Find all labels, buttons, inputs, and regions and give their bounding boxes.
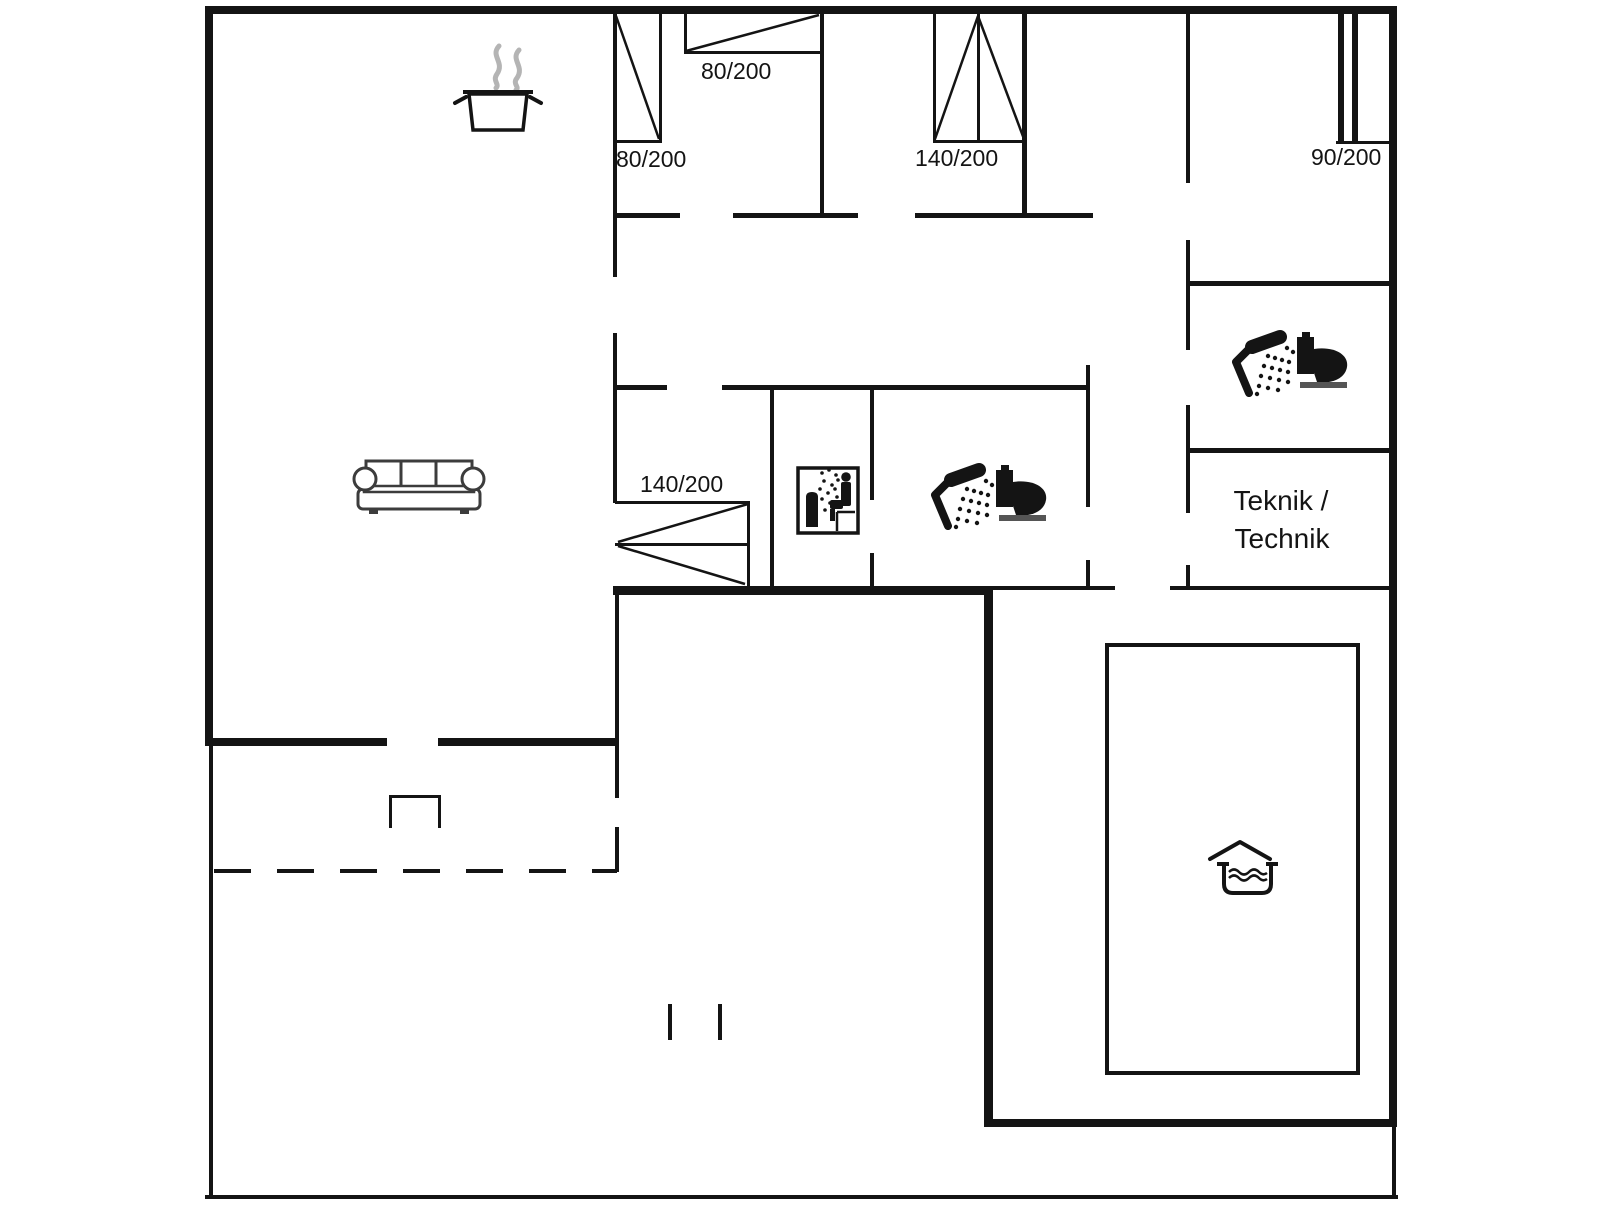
sauna-icon	[798, 468, 858, 533]
label-living-double-door: 140/200	[640, 471, 723, 497]
label-bedroom1-top-door: 80/200	[701, 58, 771, 84]
shower-icon	[935, 470, 994, 529]
dimension-labels: 80/200 80/200 140/200 90/200 140/200	[616, 58, 1381, 497]
double-swing-door-icon	[615, 501, 750, 587]
pool	[1107, 645, 1358, 1073]
toilet-icon	[996, 465, 1046, 521]
interior-walls	[205, 10, 1397, 1127]
label-technics-line2: Technik	[1235, 523, 1331, 554]
terrace-posts	[668, 1004, 722, 1040]
label-bedroom1-door: 80/200	[616, 146, 686, 172]
steam-icon	[495, 46, 519, 90]
floor-plan: 80/200 80/200 140/200 90/200 140/200 Tek…	[0, 0, 1606, 1205]
sliding-door-bedroom3	[1336, 10, 1392, 144]
floor-plan-svg: 80/200 80/200 140/200 90/200 140/200 Tek…	[0, 0, 1606, 1205]
outer-walls	[205, 6, 1398, 1199]
label-bedroom2-window: 140/200	[915, 145, 998, 171]
label-bedroom3-sliding-door: 90/200	[1311, 144, 1381, 170]
window-bedroom2	[933, 13, 1027, 143]
pool-icon	[1210, 842, 1278, 893]
shower-toilet-icons-right	[1236, 332, 1347, 396]
door-bedroom1-top	[684, 13, 822, 54]
shower-toilet-icons	[935, 465, 1046, 529]
label-technics-line1: Teknik /	[1234, 485, 1329, 516]
door-bedroom1	[613, 13, 662, 143]
sofa-icon	[354, 461, 484, 514]
cooking-pot-icon	[455, 46, 541, 130]
terrace-step	[389, 795, 441, 828]
shower-spray-dots	[954, 479, 994, 529]
room-labels: Teknik / Technik	[1234, 485, 1331, 554]
